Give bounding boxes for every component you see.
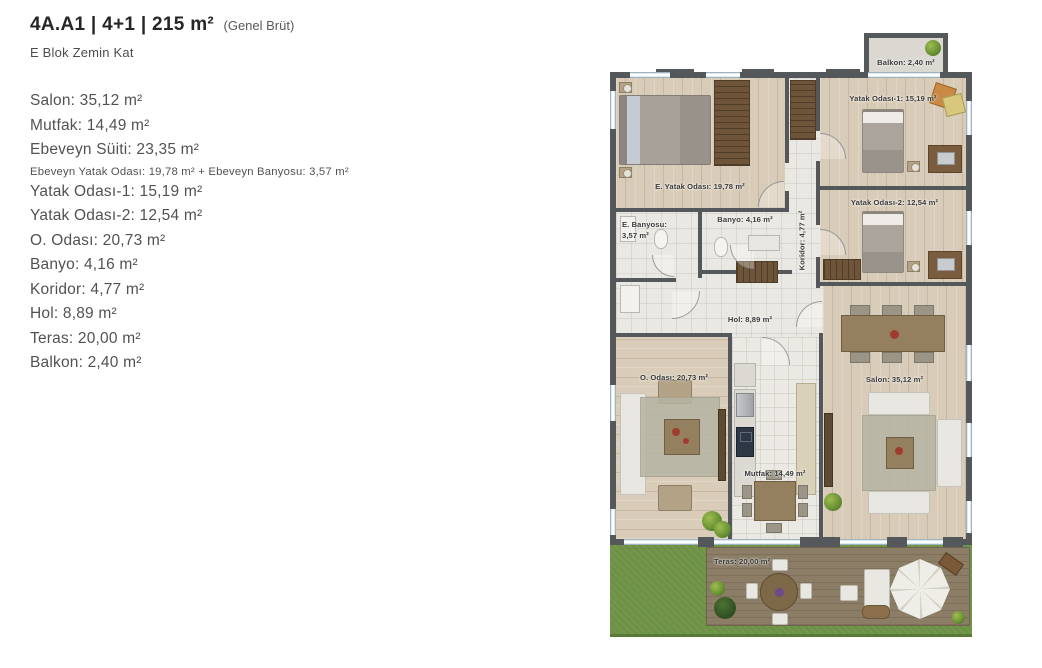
dining-chair — [850, 352, 870, 363]
info-panel: 4A.A1 | 4+1 | 215 m² (Genel Brüt) E Blok… — [30, 14, 590, 60]
label-hol: Hol: 8,89 m² — [700, 314, 800, 325]
bedroom2-wardrobe — [823, 259, 861, 280]
label-yatak-odasi-2: Yatak Odası-2: 12,54 m² — [823, 197, 966, 208]
terrace-chair — [800, 583, 812, 599]
room-list-item: O. Odası: 20,73 m² — [30, 232, 590, 250]
master-wardrobe — [714, 80, 750, 166]
room-list-item: Teras: 20,00 m² — [30, 330, 590, 348]
label-mutfak: Mutfak: 14,49 m² — [730, 468, 820, 479]
wall — [742, 69, 774, 78]
stove-oven — [736, 427, 754, 457]
window-strip — [630, 72, 670, 78]
room-list: Salon: 35,12 m²Mutfak: 14,49 m²Ebeveyn S… — [30, 92, 590, 379]
oodasi-media-unit — [718, 409, 726, 481]
kitchen-cabinet — [734, 363, 756, 387]
room-list-item: Yatak Odası-2: 12,54 m² — [30, 207, 590, 225]
room-list-item: Ebeveyn Süiti: 23,35 m² — [30, 141, 590, 159]
terrace-door-window — [840, 539, 887, 545]
terrace-plant-icon — [710, 581, 725, 596]
terrace-round-table — [760, 573, 798, 611]
room-list-detail: Ebeveyn Yatak Odası: 19,78 m² + Ebeveyn … — [30, 166, 590, 178]
corridor-wardrobe — [790, 80, 816, 140]
bedroom1-desk — [928, 145, 962, 173]
window-strip — [706, 72, 740, 78]
room-list-item: Mutfak: 14,49 m² — [30, 117, 590, 135]
block-floor-subtitle: E Blok Zemin Kat — [30, 45, 590, 60]
terrace-side-table — [840, 585, 858, 601]
label-koridor: Koridor: 4,77 m² — [797, 191, 808, 291]
window-strip — [966, 423, 972, 457]
label-balkon: Balkon: 2,40 m² — [869, 57, 943, 68]
label-teras: Teras: 20,00 m² — [714, 556, 770, 567]
wall — [816, 78, 820, 131]
terrace-chair — [772, 613, 788, 625]
label-e-yatak-odasi: E. Yatak Odası: 19,78 m² — [620, 181, 780, 192]
window-strip — [966, 345, 972, 381]
window-strip — [966, 101, 972, 135]
wall — [887, 537, 907, 547]
terrace-umbrella-icon — [890, 559, 950, 619]
kitchen-chair — [798, 485, 808, 499]
kitchen-chair — [742, 485, 752, 499]
salon-chaise — [937, 419, 962, 487]
label-e-banyosu: E. Banyosu: 3,57 m² — [622, 219, 698, 241]
window-strip — [966, 501, 972, 533]
nightstand — [619, 167, 632, 178]
window-strip — [610, 91, 616, 129]
terrace-chair — [746, 583, 758, 599]
wall — [816, 161, 820, 225]
label-salon: Salon: 35,12 m² — [823, 374, 966, 385]
salon-sofa — [868, 491, 930, 514]
balcony-plant-icon — [925, 40, 941, 56]
kitchen-chair — [742, 503, 752, 517]
terrace-door-window — [907, 539, 943, 545]
wall — [785, 78, 789, 163]
room-list-item: Balkon: 2,40 m² — [30, 354, 590, 372]
dining-chair — [882, 352, 902, 363]
wall — [826, 69, 860, 78]
salon-plant-icon — [824, 493, 842, 511]
toilet — [714, 237, 728, 257]
fridge — [736, 393, 754, 417]
oodasi-coffee-table — [664, 419, 700, 455]
terrace-bush-icon — [714, 597, 736, 619]
label-o-odasi: O. Odası: 20,73 m² — [616, 372, 732, 383]
shower — [620, 285, 640, 313]
wall — [728, 337, 732, 539]
room-list-item: Yatak Odası-1: 15,19 m² — [30, 183, 590, 201]
wall — [616, 208, 789, 212]
tv-unit — [824, 413, 833, 487]
salon-dining-table — [841, 315, 945, 352]
nightstand — [907, 261, 920, 272]
room-list-item: Banyo: 4,16 m² — [30, 256, 590, 274]
wall — [820, 186, 966, 190]
terrace-door-window — [624, 539, 698, 545]
page-title-note: (Genel Brüt) — [224, 18, 295, 33]
balcony-door-window — [868, 72, 940, 78]
kitchen-chair — [766, 523, 782, 533]
bedroom2-desk — [928, 251, 962, 279]
page-title-row: 4A.A1 | 4+1 | 215 m² (Genel Brüt) — [30, 14, 590, 36]
bathroom-vanity — [748, 235, 780, 251]
wall — [820, 282, 966, 286]
wall — [698, 537, 714, 547]
dining-chair — [914, 352, 934, 363]
kitchen-chair — [798, 503, 808, 517]
kitchen-table — [754, 481, 796, 521]
salon-sofa — [868, 392, 930, 415]
floor-plan: Balkon: 2,40 m² Teras: 20,00 m² — [610, 33, 972, 639]
master-bed — [619, 95, 711, 165]
wall — [785, 191, 789, 208]
label-banyo: Banyo: 4,16 m² — [702, 214, 788, 225]
wall — [819, 333, 823, 539]
wall — [616, 333, 732, 337]
bedroom1-bed — [862, 109, 904, 173]
terrace-mat — [862, 605, 890, 619]
room-list-item: Hol: 8,89 m² — [30, 305, 590, 323]
window-strip — [610, 385, 616, 421]
wall — [943, 537, 963, 547]
bedroom2-bed — [862, 211, 904, 273]
room-list-item: Salon: 35,12 m² — [30, 92, 590, 110]
nightstand — [907, 161, 920, 172]
oodasi-armchair — [658, 485, 692, 511]
room-list-item: Koridor: 4,77 m² — [30, 281, 590, 299]
window-strip — [966, 211, 972, 245]
terrace-plant-icon — [952, 611, 965, 624]
terrace-chair — [772, 559, 788, 571]
wall — [800, 537, 840, 547]
salon-coffee-table — [886, 437, 914, 469]
terrace-door-window — [714, 539, 800, 545]
page-title: 4A.A1 | 4+1 | 215 m² — [30, 14, 214, 35]
plant-icon — [714, 521, 731, 538]
window-strip — [610, 509, 616, 535]
nightstand — [619, 82, 632, 93]
label-yatak-odasi-1: Yatak Odası-1: 15,19 m² — [820, 93, 966, 104]
wall — [616, 278, 676, 282]
